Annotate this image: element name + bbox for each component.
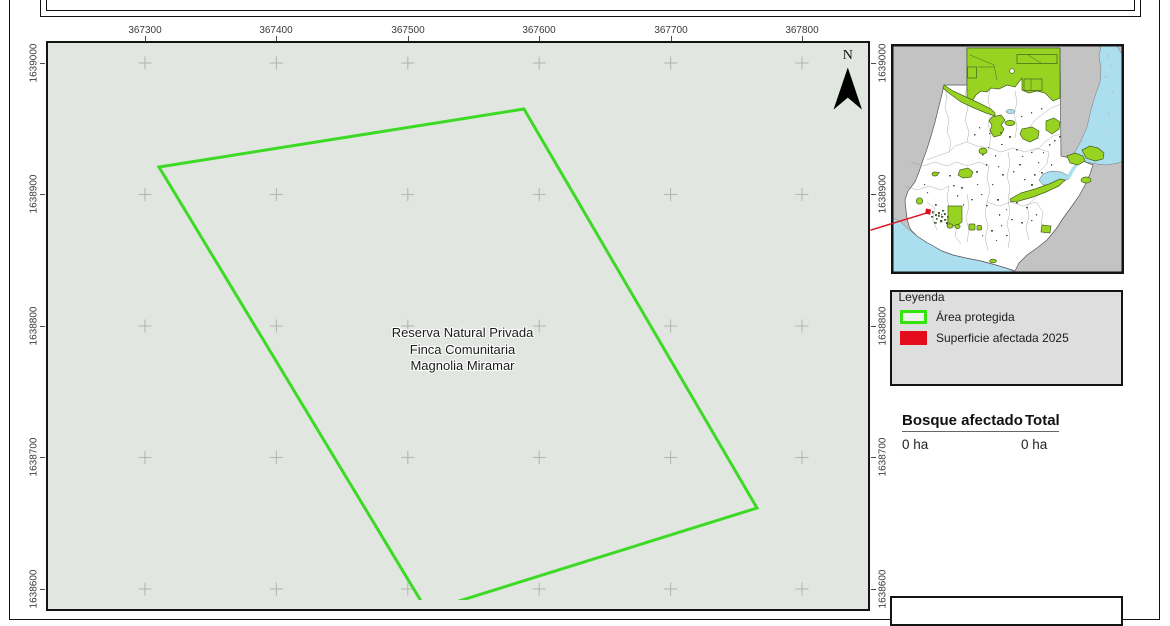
- svg-text:N: N: [843, 48, 853, 63]
